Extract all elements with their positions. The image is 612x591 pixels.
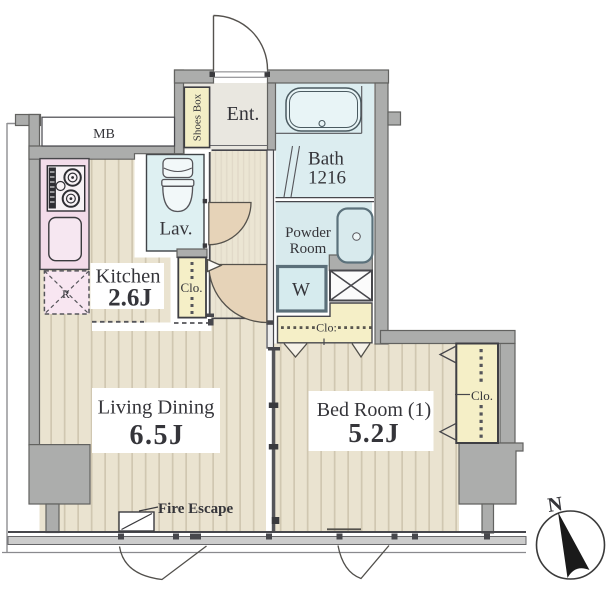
svg-text:MB: MB: [93, 127, 115, 142]
svg-text:Shoes Box: Shoes Box: [192, 93, 204, 141]
svg-text:R: R: [62, 289, 70, 301]
svg-text:Ent.: Ent.: [227, 103, 260, 125]
svg-text:Clo:: Clo:: [316, 321, 337, 335]
svg-text:Living Dining: Living Dining: [98, 397, 215, 419]
svg-text:5.2J: 5.2J: [348, 418, 399, 448]
svg-text:1216: 1216: [308, 168, 346, 189]
svg-text:Fire Escape: Fire Escape: [158, 501, 233, 517]
svg-text:Lav.: Lav.: [159, 219, 192, 240]
svg-text:Clo.: Clo.: [180, 280, 202, 295]
svg-text:Room: Room: [290, 241, 327, 257]
svg-text:Bath: Bath: [308, 149, 344, 170]
svg-text:W: W: [292, 280, 310, 301]
svg-text:Powder: Powder: [285, 225, 331, 241]
svg-text:2.6J: 2.6J: [108, 285, 152, 312]
svg-text:6.5J: 6.5J: [130, 420, 185, 451]
svg-text:Clo.: Clo.: [471, 388, 493, 403]
